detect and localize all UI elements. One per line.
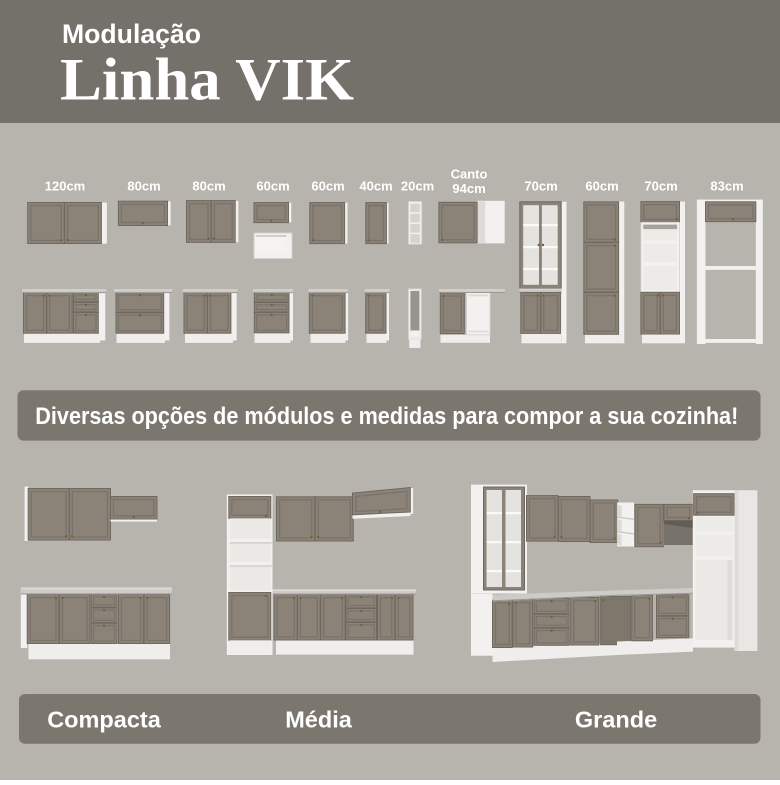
svg-text:80cm: 80cm xyxy=(127,179,160,194)
svg-text:Compacta: Compacta xyxy=(47,707,162,733)
svg-text:60cm: 60cm xyxy=(311,179,344,194)
svg-text:60cm: 60cm xyxy=(256,179,289,194)
svg-text:80cm: 80cm xyxy=(192,179,225,194)
svg-text:40cm: 40cm xyxy=(359,179,392,194)
svg-text:120cm: 120cm xyxy=(45,179,85,194)
svg-text:70cm: 70cm xyxy=(524,179,557,194)
svg-text:Canto: Canto xyxy=(451,167,488,182)
svg-text:60cm: 60cm xyxy=(585,179,618,194)
svg-text:20cm: 20cm xyxy=(401,179,434,194)
svg-text:Média: Média xyxy=(285,707,353,733)
svg-text:Linha VIK: Linha VIK xyxy=(60,47,354,113)
svg-text:Modulação: Modulação xyxy=(62,19,201,49)
svg-text:94cm: 94cm xyxy=(452,181,485,196)
svg-text:Diversas opções de módulos e m: Diversas opções de módulos e medidas par… xyxy=(35,403,738,430)
svg-text:Grande: Grande xyxy=(575,707,657,733)
svg-text:70cm: 70cm xyxy=(644,179,677,194)
svg-text:83cm: 83cm xyxy=(710,179,743,194)
